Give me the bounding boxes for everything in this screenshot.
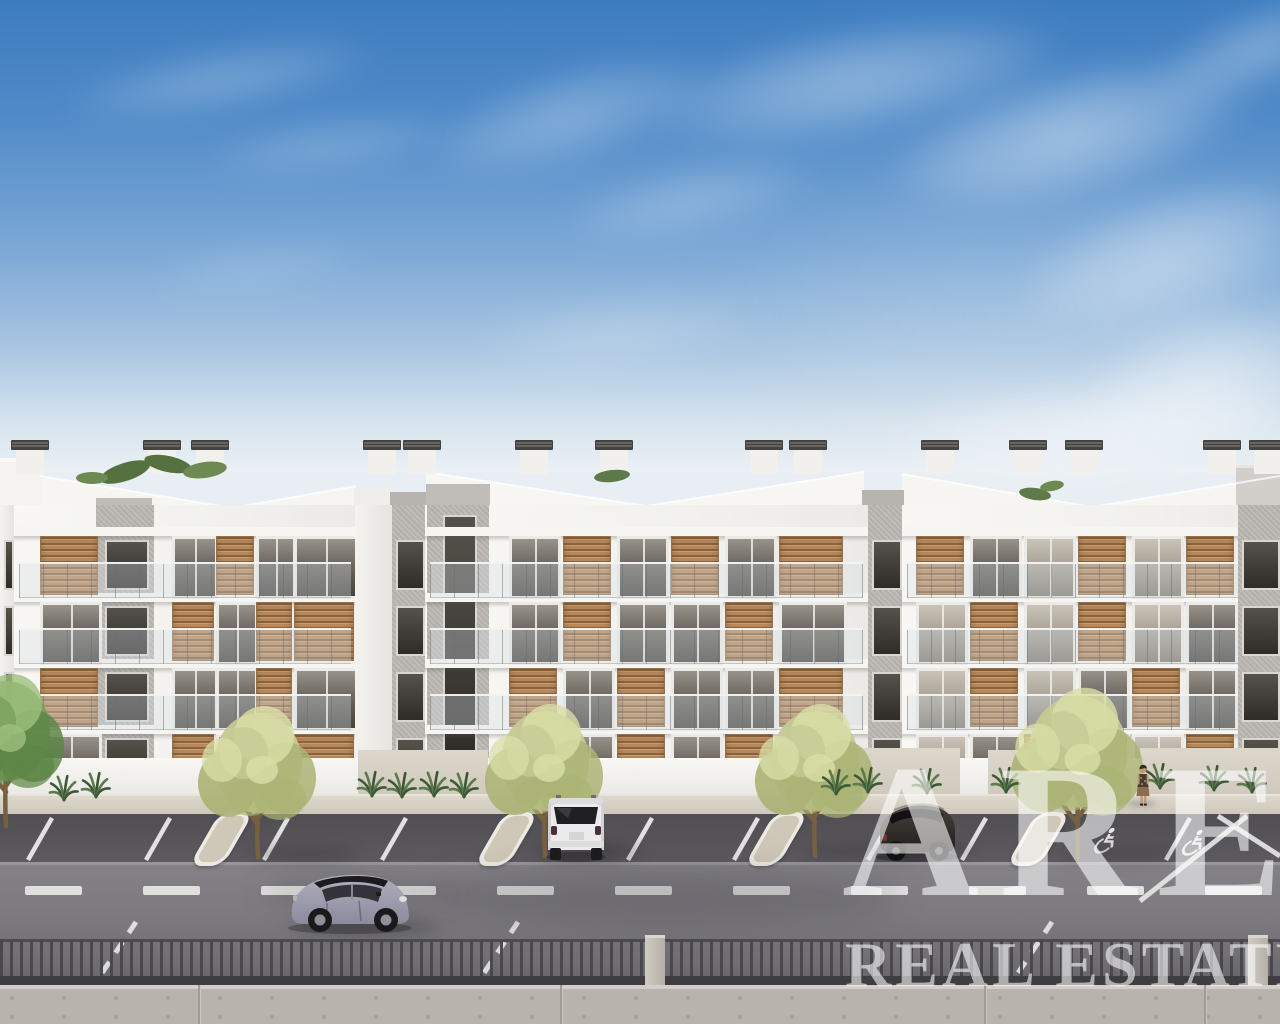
sky <box>0 0 1280 472</box>
agave-plant <box>986 760 1026 794</box>
agave-plant <box>1232 760 1272 794</box>
core-window <box>1242 606 1280 656</box>
glass-balustrade <box>907 562 1275 598</box>
balcony-slab <box>899 527 1280 536</box>
core-window <box>4 540 14 590</box>
wall-joint <box>1204 985 1207 1024</box>
agave-plant <box>848 760 888 794</box>
balcony-slab <box>11 527 359 536</box>
agave-plant <box>76 765 116 799</box>
agave-plant <box>444 765 484 799</box>
balcony-slab <box>422 527 871 536</box>
glass-balustrade <box>430 562 863 598</box>
wall-joint <box>984 985 987 1024</box>
glass-balustrade <box>430 628 863 664</box>
car-hatchback-driving <box>280 862 420 938</box>
agave-plant <box>907 761 947 795</box>
core-window <box>396 672 425 722</box>
core-window <box>872 606 902 656</box>
wall-joint <box>560 985 563 1024</box>
core-window <box>872 540 902 590</box>
concrete-wall <box>0 985 1280 1024</box>
glass-balustrade <box>19 562 351 598</box>
core-window <box>1242 540 1280 590</box>
car-dark-parked <box>872 794 962 862</box>
core-window <box>396 606 425 656</box>
property-architecture-render: ARE REAL ESTATE <box>0 0 1280 1024</box>
railing-base-rail <box>0 976 1280 985</box>
car-suv-parked <box>544 788 610 862</box>
agave-plant <box>1194 758 1234 792</box>
tree <box>0 641 91 831</box>
pedestrian-woman <box>1128 762 1158 808</box>
core-window <box>396 540 425 590</box>
wall-joint <box>198 985 201 1024</box>
core-window <box>1242 672 1280 722</box>
tree <box>173 673 343 863</box>
glass-balustrade <box>907 628 1275 664</box>
railing-fence <box>0 941 1280 980</box>
